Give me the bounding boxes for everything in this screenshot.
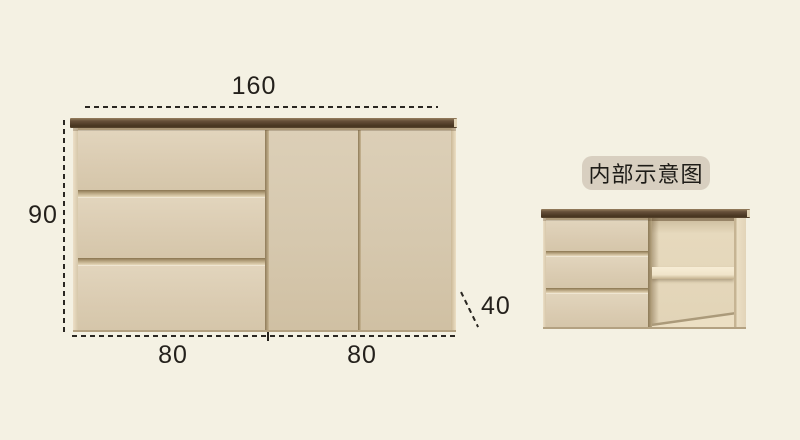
inset-cabinet-top-slab — [541, 209, 750, 218]
left-section-dimension-label: 80 — [140, 343, 206, 368]
furniture-dimension-diagram: 160 90 80 80 40 内部示意图 — [0, 0, 800, 440]
main-cabinet-drawer-2 — [78, 197, 265, 258]
inset-cabinet-drawer-1 — [546, 220, 648, 251]
inset-compartment-shelf — [652, 267, 734, 279]
inset-title-label: 内部示意图 — [588, 157, 703, 189]
width-dimension-line — [85, 106, 438, 108]
inset-title-badge: 内部示意图 — [582, 156, 710, 190]
inset-cabinet-drawer-3 — [546, 293, 648, 327]
inset-cabinet-bottom-edge — [543, 327, 746, 329]
depth-dimension-line — [460, 292, 479, 328]
main-cabinet-bottom-edge — [73, 330, 456, 332]
main-cabinet-drawer-1 — [78, 130, 265, 190]
main-cabinet-right-side-panel — [451, 128, 456, 332]
main-cabinet-drawer-3 — [78, 265, 265, 330]
inset-cabinet-right-side-panel — [734, 218, 746, 329]
main-cabinet-body — [73, 128, 456, 332]
main-cabinet-door-left — [269, 130, 358, 330]
height-dimension-label: 90 — [22, 203, 64, 228]
inset-cabinet-under-top-shadow — [543, 218, 734, 221]
main-cabinet-under-top-shadow — [73, 128, 456, 131]
bottom-dimension-line — [72, 335, 456, 337]
inset-cabinet-body — [543, 218, 746, 329]
main-cabinet-drawer-gap-1 — [78, 190, 265, 197]
inset-cabinet-open-compartment — [652, 218, 734, 329]
main-cabinet-door-right — [361, 130, 451, 330]
inset-cabinet-drawer-2 — [546, 256, 648, 288]
depth-dimension-label: 40 — [481, 294, 529, 319]
main-cabinet-drawer-gap-2 — [78, 258, 265, 265]
width-dimension-label: 160 — [219, 74, 289, 99]
height-dimension-line — [63, 120, 65, 333]
right-section-dimension-label: 80 — [329, 343, 395, 368]
main-cabinet-top-slab — [70, 118, 457, 128]
